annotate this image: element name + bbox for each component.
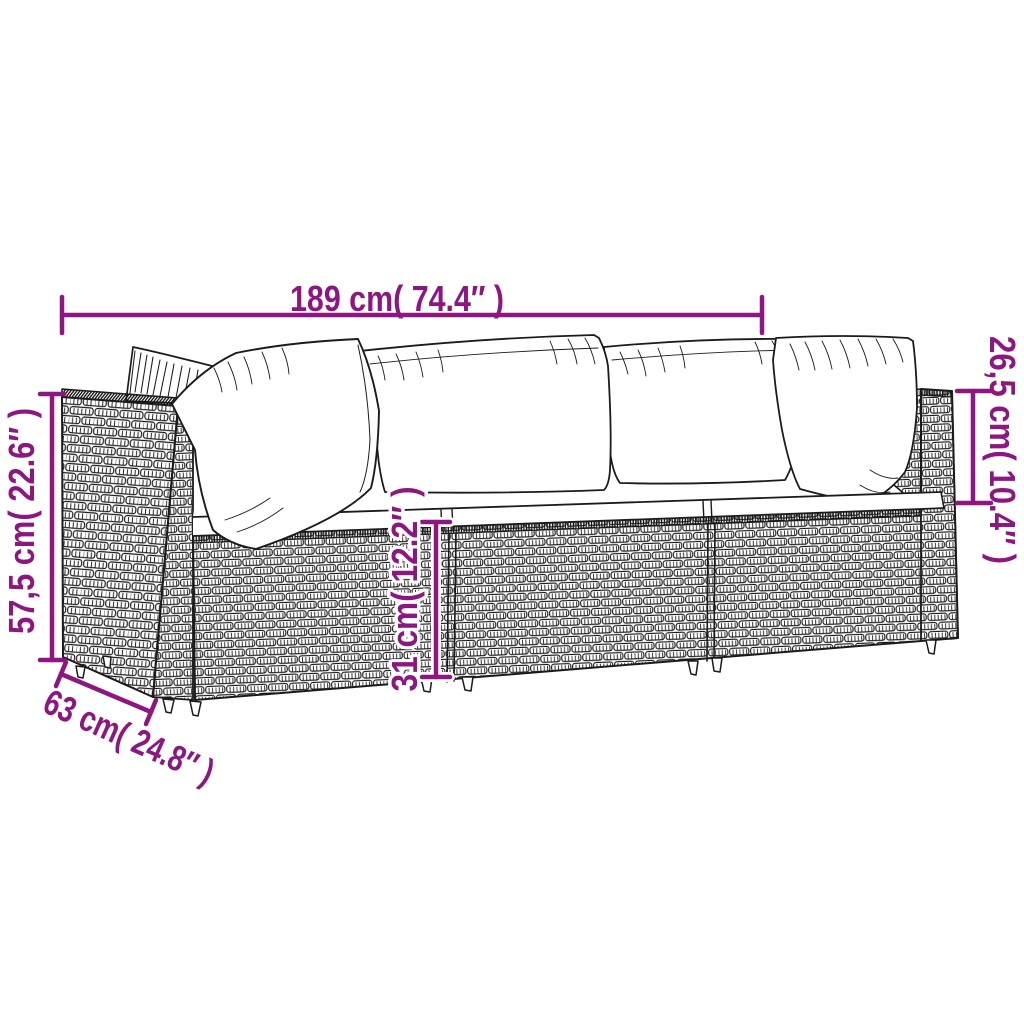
svg-text:189 cm( 74.4″ ): 189 cm( 74.4″ ): [290, 278, 504, 319]
svg-text:26,5 cm( 10.4″ ): 26,5 cm( 10.4″ ): [982, 336, 1023, 564]
svg-text:31 cm( 12.2″ ): 31 cm( 12.2″ ): [384, 487, 425, 692]
svg-text:57,5 cm( 22.6″ ): 57,5 cm( 22.6″ ): [1, 408, 42, 634]
